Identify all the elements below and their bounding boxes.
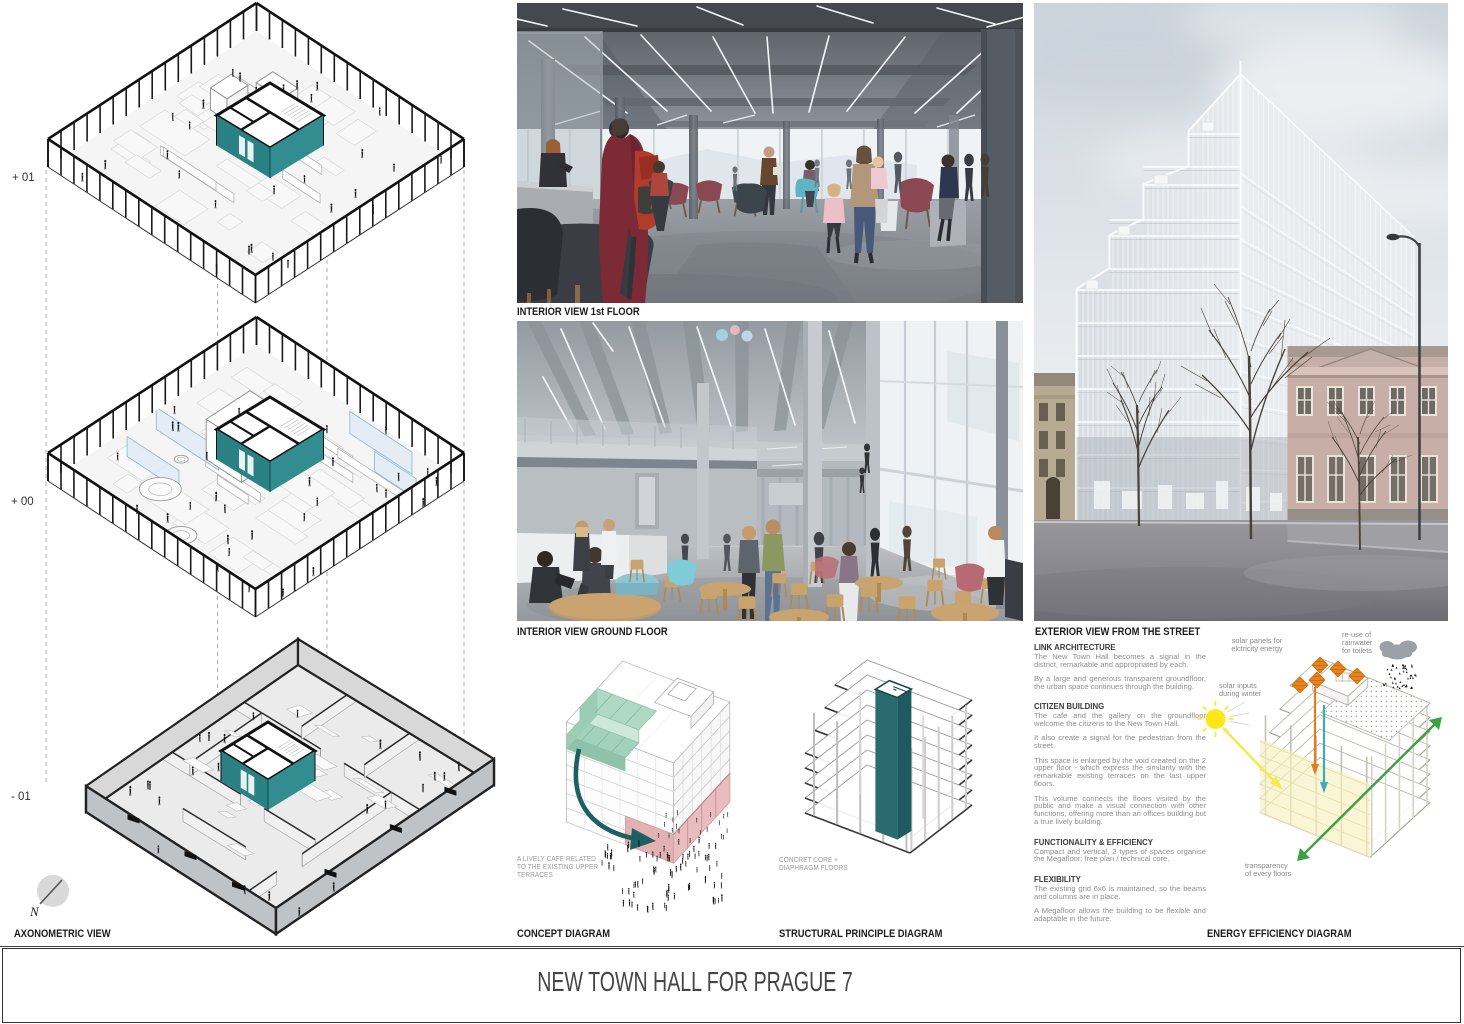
svg-text:of every floors: of every floors — [1245, 869, 1292, 878]
svg-text:for toilets: for toilets — [1342, 646, 1372, 655]
svg-text:+ 01: + 01 — [12, 172, 35, 184]
svg-text:- 01: - 01 — [11, 791, 31, 803]
svg-text:N: N — [29, 904, 40, 919]
svg-text:elctricity energy: elctricity energy — [1231, 644, 1283, 653]
svg-text:during winter: during winter — [1219, 689, 1262, 698]
svg-text:+ 00: + 00 — [11, 496, 34, 508]
